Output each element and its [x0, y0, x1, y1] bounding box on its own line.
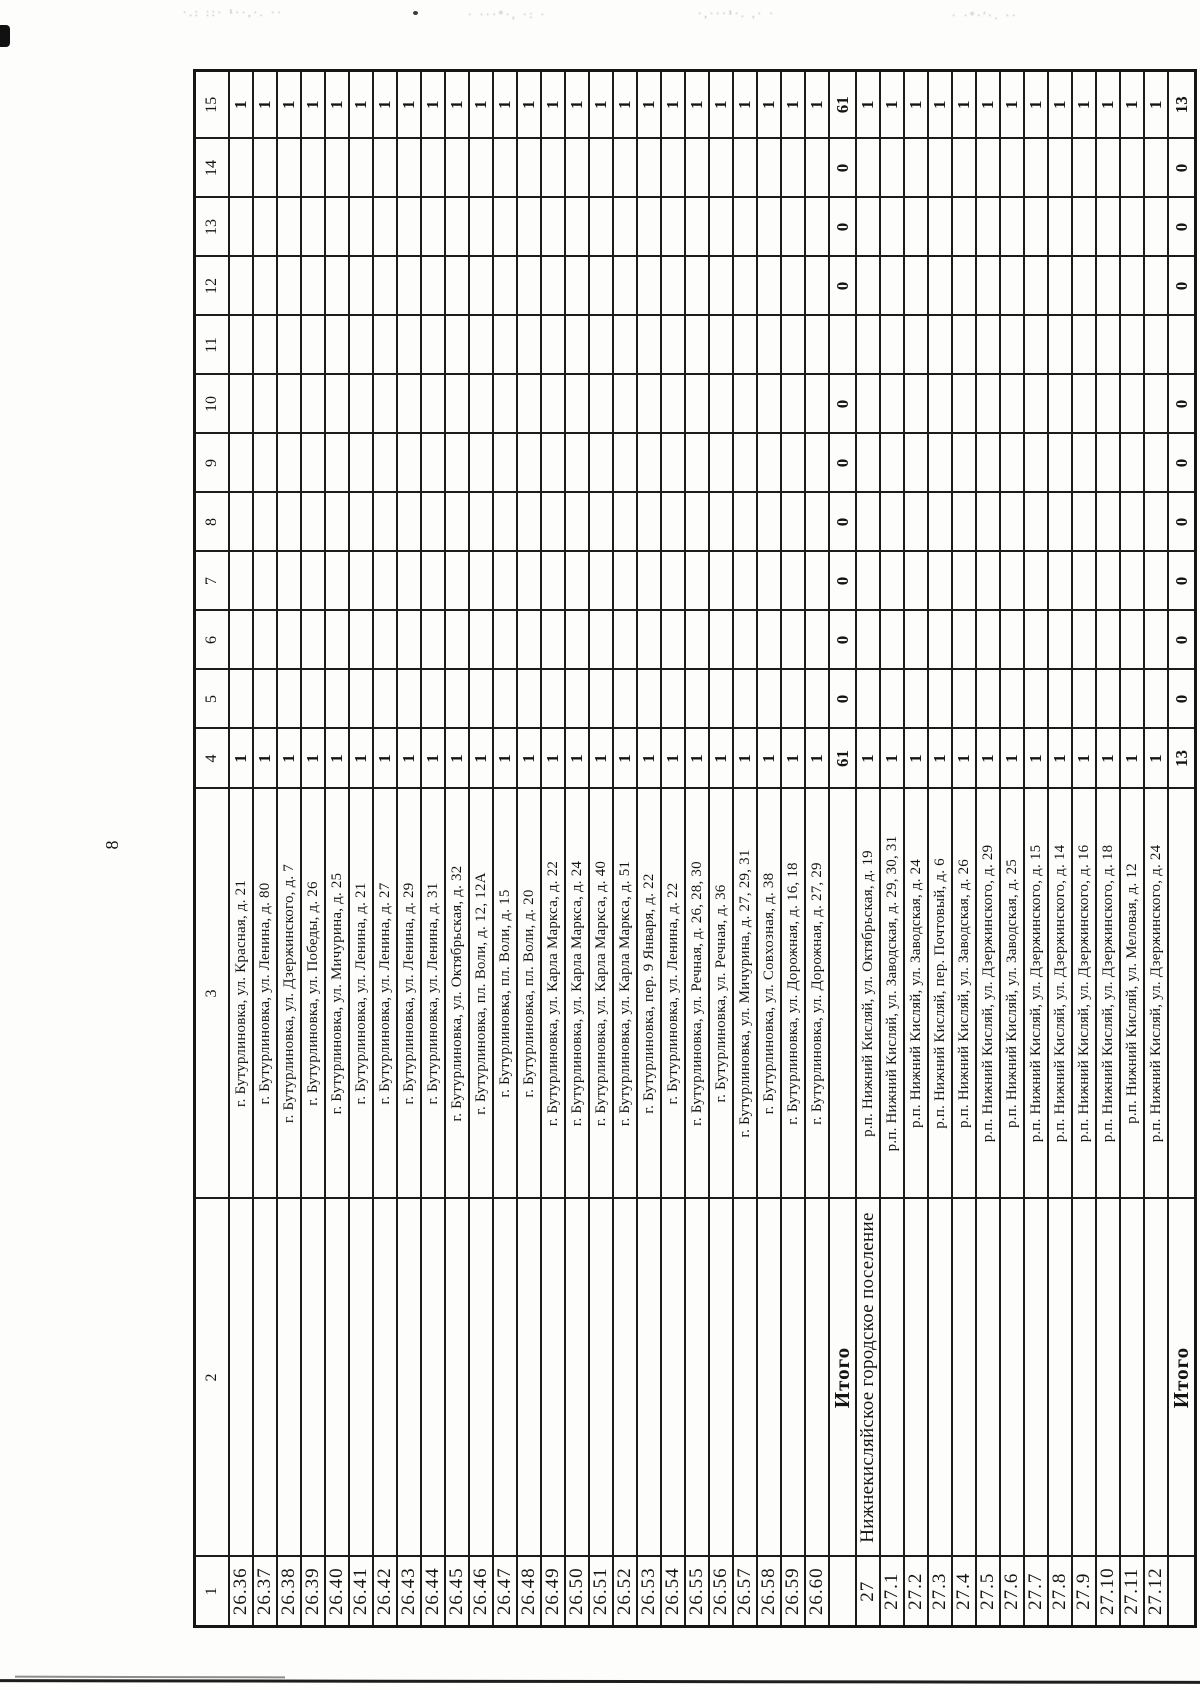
address-cell: г. Бутурлиновка, ул. Мичурина, д. 25 [325, 789, 349, 1199]
value-cell-col10 [1120, 375, 1144, 434]
value-cell-col6 [805, 611, 829, 670]
value-cell-col14 [517, 139, 541, 198]
address-cell: г. Бутурлиновка, ул. Речная, д. 36 [709, 789, 733, 1199]
value-cell-col9 [349, 434, 373, 493]
address-cell: г. Бутурлиновка, ул. Победы, д. 26 [301, 789, 325, 1199]
value-cell-col6 [928, 611, 952, 670]
value-cell-col6 [1096, 611, 1120, 670]
value-cell-col11 [976, 316, 1000, 375]
row-id-cell: 26.48 [517, 1557, 541, 1627]
value-cell-col4: 61 [829, 729, 856, 789]
value-cell-col7 [805, 552, 829, 611]
row-id-cell: 27.1 [880, 1557, 904, 1627]
value-cell-col15: 1 [565, 71, 589, 139]
value-cell-col14 [421, 139, 445, 198]
settlement-cell [493, 1199, 517, 1557]
value-cell-col7 [1048, 552, 1072, 611]
value-cell-col10 [1072, 375, 1096, 434]
value-cell-col13 [277, 198, 301, 257]
value-cell-col6 [613, 611, 637, 670]
page-number: 8 [102, 831, 126, 859]
value-cell-col4: 1 [637, 729, 661, 789]
value-cell-col7 [781, 552, 805, 611]
value-cell-col9 [589, 434, 613, 493]
value-cell-col5 [229, 670, 253, 729]
settlement-cell [1072, 1199, 1096, 1557]
column-header: 4 [195, 729, 230, 789]
value-cell-col8 [253, 493, 277, 552]
value-cell-col11 [541, 316, 565, 375]
value-cell-col10 [685, 375, 709, 434]
value-cell-col14 [1024, 139, 1048, 198]
value-cell-col13 [637, 198, 661, 257]
value-cell-col15: 1 [325, 71, 349, 139]
value-cell-col9 [976, 434, 1000, 493]
header-row: 123456789101112131415 [195, 71, 230, 1627]
value-cell-col6 [1120, 611, 1144, 670]
value-cell-col11 [637, 316, 661, 375]
value-cell-col12 [976, 257, 1000, 316]
value-cell-col5 [928, 670, 952, 729]
value-cell-col8 [1072, 493, 1096, 552]
row-id-cell: 26.46 [469, 1557, 493, 1627]
row-id-cell: 26.44 [421, 1557, 445, 1627]
row-id-cell: 26.49 [541, 1557, 565, 1627]
value-cell-col5 [349, 670, 373, 729]
table-row: 27.5р.п. Нижний Кисляй, ул. Дзержинского… [976, 71, 1000, 1627]
value-cell-col10 [589, 375, 613, 434]
value-cell-col15: 1 [445, 71, 469, 139]
value-cell-col13 [1072, 198, 1096, 257]
value-cell-col11 [277, 316, 301, 375]
value-cell-col6 [349, 611, 373, 670]
value-cell-col10 [1096, 375, 1120, 434]
value-cell-col7 [541, 552, 565, 611]
value-cell-col7 [613, 552, 637, 611]
value-cell-col4: 1 [469, 729, 493, 789]
value-cell-col8 [277, 493, 301, 552]
value-cell-col10 [904, 375, 928, 434]
table-row: 27.7р.п. Нижний Кисляй, ул. Дзержинского… [1024, 71, 1048, 1627]
settlement-cell [229, 1199, 253, 1557]
value-cell-col7 [565, 552, 589, 611]
address-cell: р.п. Нижний Кисляй, ул. Заводская, д. 24 [904, 789, 928, 1199]
row-id-cell: 26.52 [613, 1557, 637, 1627]
row-id-cell: 26.47 [493, 1557, 517, 1627]
value-cell-col4: 1 [1120, 729, 1144, 789]
settlement-cell [445, 1199, 469, 1557]
value-cell-col15: 1 [613, 71, 637, 139]
value-cell-col15: 1 [880, 71, 904, 139]
value-cell-col9 [733, 434, 757, 493]
value-cell-col7 [1120, 552, 1144, 611]
value-cell-col14 [565, 139, 589, 198]
row-id-cell: 27.11 [1120, 1557, 1144, 1627]
value-cell-col15: 1 [541, 71, 565, 139]
value-cell-col11 [1120, 316, 1144, 375]
row-id-cell: 26.42 [373, 1557, 397, 1627]
value-cell-col5 [1048, 670, 1072, 729]
value-cell-col14 [469, 139, 493, 198]
value-cell-col7 [493, 552, 517, 611]
settlement-cell [709, 1199, 733, 1557]
settlement-cell [637, 1199, 661, 1557]
value-cell-col10 [709, 375, 733, 434]
value-cell-col9 [928, 434, 952, 493]
value-cell-col6 [277, 611, 301, 670]
table-row: 26.47г. Бутурлиновка, пл. Воли, д. 1511 [493, 71, 517, 1627]
value-cell-col10 [325, 375, 349, 434]
value-cell-col7 [277, 552, 301, 611]
value-cell-col14 [928, 139, 952, 198]
value-cell-col12 [421, 257, 445, 316]
value-cell-col4: 1 [1048, 729, 1072, 789]
value-cell-col9 [1000, 434, 1024, 493]
column-header: 7 [195, 552, 230, 611]
value-cell-col8 [661, 493, 685, 552]
address-cell: р.п. Нижний Кисляй, ул. Заводская, д. 26 [952, 789, 976, 1199]
value-cell-col6 [469, 611, 493, 670]
value-cell-col10 [421, 375, 445, 434]
row-id-cell [1168, 1557, 1196, 1627]
value-cell-col7 [928, 552, 952, 611]
value-cell-col7 [757, 552, 781, 611]
value-cell-col10 [301, 375, 325, 434]
value-cell-col10 [277, 375, 301, 434]
value-cell-col9 [709, 434, 733, 493]
value-cell-col6 [301, 611, 325, 670]
value-cell-col6 [373, 611, 397, 670]
value-cell-col9 [565, 434, 589, 493]
value-cell-col14 [253, 139, 277, 198]
value-cell-col10 [1048, 375, 1072, 434]
value-cell-col4: 1 [1072, 729, 1096, 789]
value-cell-col12 [805, 257, 829, 316]
value-cell-col11 [397, 316, 421, 375]
column-header: 6 [195, 611, 230, 670]
value-cell-col5 [253, 670, 277, 729]
value-cell-col9 [469, 434, 493, 493]
value-cell-col15: 1 [757, 71, 781, 139]
value-cell-col9 [277, 434, 301, 493]
value-cell-col11 [880, 316, 904, 375]
value-cell-col14 [805, 139, 829, 198]
address-cell: г. Бутурлиновка, пер. 9 Января, д. 22 [637, 789, 661, 1199]
value-cell-col9: 0 [1168, 434, 1196, 493]
value-cell-col13 [397, 198, 421, 257]
table-row: 26.49г. Бутурлиновка, ул. Карла Маркса, … [541, 71, 565, 1627]
value-cell-col11 [856, 316, 880, 375]
value-cell-col6 [517, 611, 541, 670]
address-cell: г. Бутурлиновка, ул. Совхозная, д. 38 [757, 789, 781, 1199]
value-cell-col8 [565, 493, 589, 552]
value-cell-col9 [253, 434, 277, 493]
settlement-cell [517, 1199, 541, 1557]
value-cell-col4: 1 [589, 729, 613, 789]
table-row: 26.43г. Бутурлиновка, ул. Ленина, д. 291… [397, 71, 421, 1627]
row-id-cell: 27.12 [1144, 1557, 1168, 1627]
value-cell-col13 [880, 198, 904, 257]
value-cell-col10 [469, 375, 493, 434]
value-cell-col15: 1 [805, 71, 829, 139]
value-cell-col12 [1096, 257, 1120, 316]
value-cell-col7 [709, 552, 733, 611]
value-cell-col12 [781, 257, 805, 316]
value-cell-col13 [1048, 198, 1072, 257]
table-row: 26.52г. Бутурлиновка, ул. Карла Маркса, … [613, 71, 637, 1627]
address-cell: г. Бутурлиновка, ул. Мичурина, д. 27, 29… [733, 789, 757, 1199]
value-cell-col15: 1 [952, 71, 976, 139]
table-row: 26.38г. Бутурлиновка, ул. Дзержинского, … [277, 71, 301, 1627]
value-cell-col13 [1144, 198, 1168, 257]
table-row: 26.46г. Бутурлиновка, пл. Воли, д. 12, 1… [469, 71, 493, 1627]
value-cell-col7 [469, 552, 493, 611]
value-cell-col12 [637, 257, 661, 316]
total-label-cell: Итого [829, 1199, 856, 1557]
value-cell-col10 [517, 375, 541, 434]
value-cell-col14 [733, 139, 757, 198]
value-cell-col13 [1000, 198, 1024, 257]
settlement-cell [952, 1199, 976, 1557]
value-cell-col9 [952, 434, 976, 493]
settlement-cell [565, 1199, 589, 1557]
value-cell-col7 [421, 552, 445, 611]
value-cell-col11 [349, 316, 373, 375]
value-cell-col12 [1144, 257, 1168, 316]
value-cell-col6: 0 [1168, 611, 1196, 670]
address-cell: г. Бутурлиновка, ул. Карла Маркса, д. 24 [565, 789, 589, 1199]
value-cell-col5: 0 [829, 670, 856, 729]
value-cell-col13 [469, 198, 493, 257]
value-cell-col5 [757, 670, 781, 729]
value-cell-col12 [1000, 257, 1024, 316]
value-cell-col5 [589, 670, 613, 729]
value-cell-col13 [1120, 198, 1144, 257]
value-cell-col14 [397, 139, 421, 198]
value-cell-col14 [880, 139, 904, 198]
value-cell-col12 [325, 257, 349, 316]
value-cell-col15: 1 [685, 71, 709, 139]
value-cell-col9 [1096, 434, 1120, 493]
value-cell-col13 [928, 198, 952, 257]
value-cell-col9: 0 [829, 434, 856, 493]
value-cell-col12 [517, 257, 541, 316]
value-cell-col10 [373, 375, 397, 434]
table-row: 26.44г. Бутурлиновка, ул. Ленина, д. 311… [421, 71, 445, 1627]
address-cell: г. Бутурлиновка, ул. Дорожная, д. 27, 29 [805, 789, 829, 1199]
value-cell-col13 [349, 198, 373, 257]
value-cell-col13: 0 [1168, 198, 1196, 257]
value-cell-col6 [1000, 611, 1024, 670]
scan-noise: ·,···¹·. ,· · [698, 9, 776, 20]
settlement-cell [1000, 1199, 1024, 1557]
value-cell-col14 [493, 139, 517, 198]
address-cell [829, 789, 856, 1199]
value-cell-col6 [1072, 611, 1096, 670]
value-cell-col5 [301, 670, 325, 729]
value-cell-col7 [517, 552, 541, 611]
value-cell-col13 [589, 198, 613, 257]
value-cell-col13 [613, 198, 637, 257]
row-id-cell: 26.38 [277, 1557, 301, 1627]
table-row: 27.9р.п. Нижний Кисляй, ул. Дзержинского… [1072, 71, 1096, 1627]
table-row: 27.2р.п. Нижний Кисляй, ул. Заводская, д… [904, 71, 928, 1627]
total-row: Итого1300000000013 [1168, 71, 1196, 1627]
address-cell: г. Бутурлиновка, ул. Дорожная, д. 16, 18 [781, 789, 805, 1199]
value-cell-col9 [1120, 434, 1144, 493]
value-cell-col11 [1168, 316, 1196, 375]
value-cell-col6 [1048, 611, 1072, 670]
column-header: 14 [195, 139, 230, 198]
scan-edge-mark [0, 25, 10, 47]
value-cell-col13 [904, 198, 928, 257]
value-cell-col5 [952, 670, 976, 729]
row-id-cell: 27.8 [1048, 1557, 1072, 1627]
address-cell: г. Бутурлиновка, ул. Дзержинского, д. 7 [277, 789, 301, 1199]
settlement-cell [277, 1199, 301, 1557]
value-cell-col8 [880, 493, 904, 552]
value-cell-col13 [856, 198, 880, 257]
address-cell: р.п. Нижний Кисляй, ул. Заводская, д. 29… [880, 789, 904, 1199]
value-cell-col5 [880, 670, 904, 729]
value-cell-col6 [856, 611, 880, 670]
row-id-cell: 26.60 [805, 1557, 829, 1627]
value-cell-col12 [1048, 257, 1072, 316]
value-cell-col15: 1 [904, 71, 928, 139]
value-cell-col4: 1 [349, 729, 373, 789]
value-cell-col5 [637, 670, 661, 729]
value-cell-col8 [541, 493, 565, 552]
value-cell-col6 [685, 611, 709, 670]
address-cell: р.п. Нижний Кисляй, ул. Меловая, д. 12 [1120, 789, 1144, 1199]
settlement-cell [928, 1199, 952, 1557]
value-cell-col15: 1 [349, 71, 373, 139]
value-cell-col14: 0 [1168, 139, 1196, 198]
value-cell-col5 [1096, 670, 1120, 729]
value-cell-col5 [445, 670, 469, 729]
value-cell-col4: 1 [781, 729, 805, 789]
value-cell-col12 [469, 257, 493, 316]
value-cell-col8 [229, 493, 253, 552]
value-cell-col11 [253, 316, 277, 375]
address-cell [1168, 789, 1196, 1199]
value-cell-col13 [517, 198, 541, 257]
value-cell-col14 [229, 139, 253, 198]
value-cell-col15: 1 [709, 71, 733, 139]
value-cell-col11 [928, 316, 952, 375]
value-cell-col12 [589, 257, 613, 316]
value-cell-col13 [952, 198, 976, 257]
value-cell-col7 [637, 552, 661, 611]
row-id-cell: 26.41 [349, 1557, 373, 1627]
table-row: 26.58г. Бутурлиновка, ул. Совхозная, д. … [757, 71, 781, 1627]
value-cell-col8 [685, 493, 709, 552]
value-cell-col13 [541, 198, 565, 257]
value-cell-col6 [709, 611, 733, 670]
value-cell-col9 [445, 434, 469, 493]
address-cell: г. Бутурлиновка, ул. Октябрьская, д. 32 [445, 789, 469, 1199]
value-cell-col10 [976, 375, 1000, 434]
value-cell-col7 [856, 552, 880, 611]
address-cell: р.п. Нижний Кисляй, ул. Октябрьская, д. … [856, 789, 880, 1199]
value-cell-col12 [397, 257, 421, 316]
value-cell-col14 [373, 139, 397, 198]
settlement-cell [301, 1199, 325, 1557]
table-row: 26.59г. Бутурлиновка, ул. Дорожная, д. 1… [781, 71, 805, 1627]
value-cell-col12 [373, 257, 397, 316]
value-cell-col5: 0 [1168, 670, 1196, 729]
value-cell-col5 [1000, 670, 1024, 729]
value-cell-col11 [493, 316, 517, 375]
column-header: 13 [195, 198, 230, 257]
row-id-cell: 26.55 [685, 1557, 709, 1627]
address-cell: г. Бутурлиновка, ул. Ленина, д. 22 [661, 789, 685, 1199]
value-cell-col14 [904, 139, 928, 198]
value-cell-col14 [277, 139, 301, 198]
value-cell-col5 [325, 670, 349, 729]
value-cell-col4: 1 [613, 729, 637, 789]
value-cell-col8 [373, 493, 397, 552]
address-cell: г. Бутурлиновка, ул. Ленина, д. 31 [421, 789, 445, 1199]
value-cell-col10 [349, 375, 373, 434]
value-cell-col9 [1144, 434, 1168, 493]
value-cell-col15: 1 [976, 71, 1000, 139]
value-cell-col15: 1 [397, 71, 421, 139]
value-cell-col10 [856, 375, 880, 434]
value-cell-col8 [1024, 493, 1048, 552]
value-cell-col9 [229, 434, 253, 493]
settlement-cell [685, 1199, 709, 1557]
value-cell-col8 [445, 493, 469, 552]
value-cell-col14 [1144, 139, 1168, 198]
address-cell: г. Бутурлиновка, пл. Воли, д. 12, 12А [469, 789, 493, 1199]
value-cell-col15: 1 [1000, 71, 1024, 139]
table-row: 27.1р.п. Нижний Кисляй, ул. Заводская, д… [880, 71, 904, 1627]
row-id-cell: 27.4 [952, 1557, 976, 1627]
value-cell-col13 [373, 198, 397, 257]
value-cell-col12 [445, 257, 469, 316]
column-header: 8 [195, 493, 230, 552]
value-cell-col12 [541, 257, 565, 316]
value-cell-col7 [253, 552, 277, 611]
value-cell-col13 [1024, 198, 1048, 257]
value-cell-col4: 1 [661, 729, 685, 789]
table-row: 26.55г. Бутурлиновка, ул. Речная, д. 26,… [685, 71, 709, 1627]
row-id-cell: 27.5 [976, 1557, 1000, 1627]
value-cell-col6 [229, 611, 253, 670]
value-cell-col10: 0 [829, 375, 856, 434]
table-row: 26.57г. Бутурлиновка, ул. Мичурина, д. 2… [733, 71, 757, 1627]
value-cell-col4: 1 [805, 729, 829, 789]
value-cell-col10 [1144, 375, 1168, 434]
value-cell-col15: 1 [373, 71, 397, 139]
value-cell-col12 [661, 257, 685, 316]
value-cell-col7 [661, 552, 685, 611]
address-cell: р.п. Нижний Кисляй, ул. Дзержинского, д.… [1024, 789, 1048, 1199]
value-cell-col8 [856, 493, 880, 552]
value-cell-col11 [685, 316, 709, 375]
table-row: 26.40г. Бутурлиновка, ул. Мичурина, д. 2… [325, 71, 349, 1627]
value-cell-col10 [229, 375, 253, 434]
table-row: 27.12р.п. Нижний Кисляй, ул. Дзержинског… [1144, 71, 1168, 1627]
value-cell-col13 [565, 198, 589, 257]
value-cell-col5 [565, 670, 589, 729]
value-cell-col9 [493, 434, 517, 493]
value-cell-col15: 1 [301, 71, 325, 139]
settlement-cell [904, 1199, 928, 1557]
value-cell-col6 [565, 611, 589, 670]
value-cell-col4: 1 [493, 729, 517, 789]
